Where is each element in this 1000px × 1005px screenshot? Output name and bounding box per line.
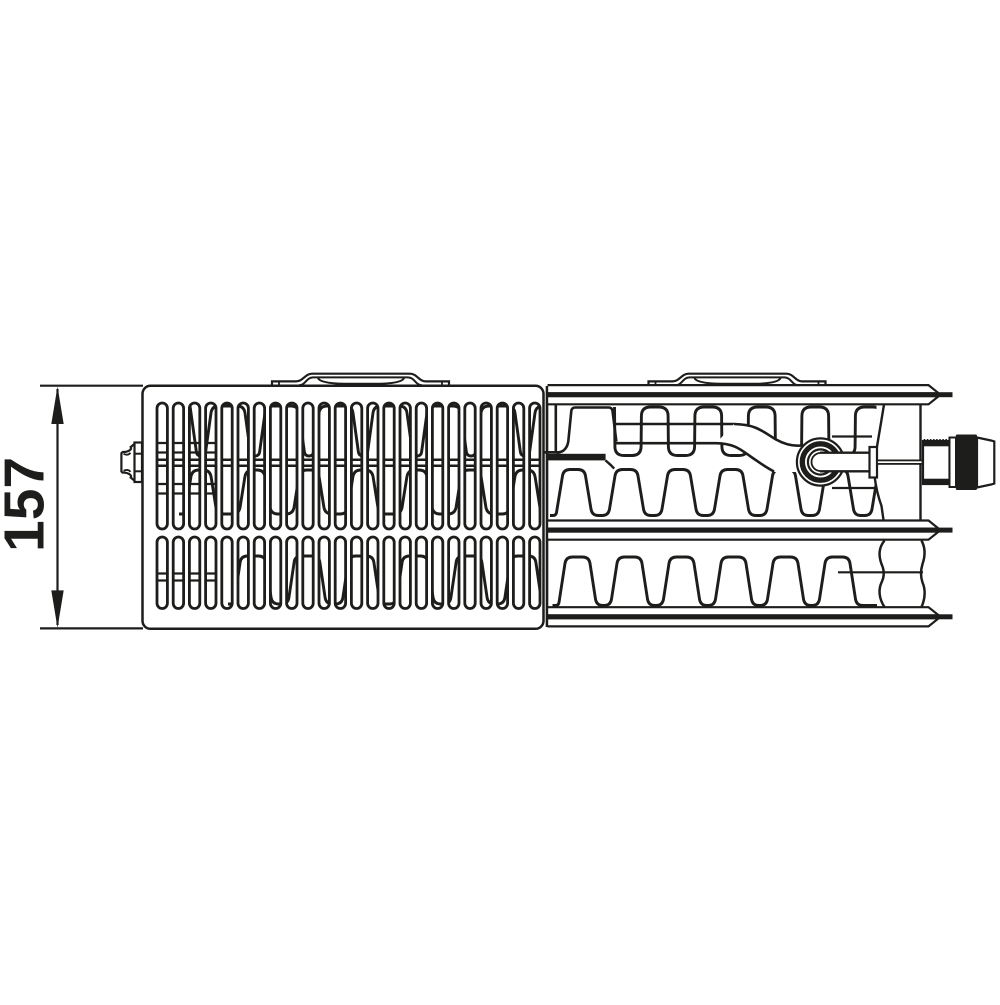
svg-text:157: 157 (0, 457, 57, 552)
